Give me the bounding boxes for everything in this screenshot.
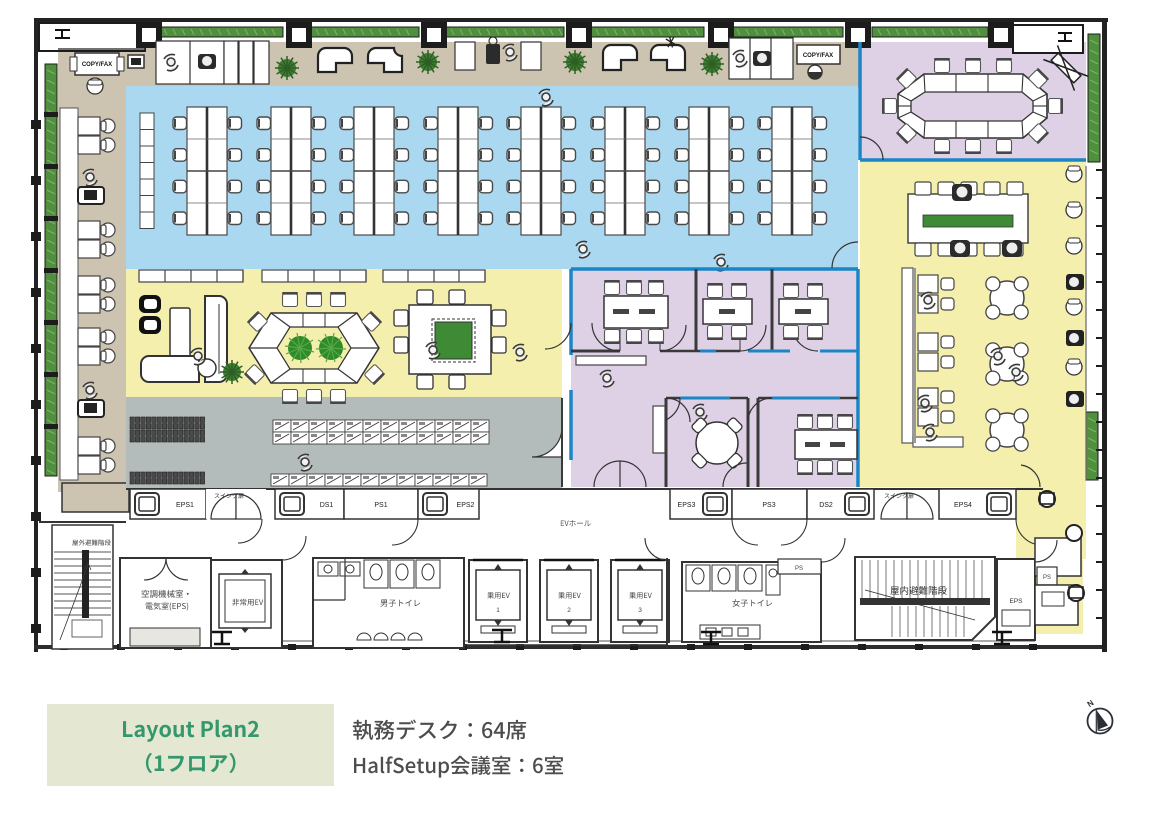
svg-text:COPY/FAX: COPY/FAX — [803, 53, 833, 59]
svg-text:EPS2: EPS2 — [457, 502, 475, 509]
svg-text:EPS: EPS — [1009, 598, 1023, 605]
svg-text:N: N — [1086, 698, 1096, 709]
svg-text:DS2: DS2 — [819, 502, 833, 509]
svg-text:DS1: DS1 — [320, 502, 334, 509]
svg-text:COPY/FAX: COPY/FAX — [82, 62, 112, 68]
svg-text:3: 3 — [638, 607, 642, 614]
svg-text:PS: PS — [1043, 575, 1051, 581]
svg-text:PS3: PS3 — [762, 502, 775, 509]
svg-text:PS1: PS1 — [374, 502, 387, 509]
svg-text:PS: PS — [795, 566, 803, 572]
svg-text:EPS3: EPS3 — [678, 502, 696, 509]
svg-text:EPS4: EPS4 — [954, 502, 972, 509]
svg-text:1: 1 — [496, 607, 500, 614]
svg-text:EPS1: EPS1 — [176, 502, 194, 509]
svg-text:2: 2 — [567, 607, 571, 614]
